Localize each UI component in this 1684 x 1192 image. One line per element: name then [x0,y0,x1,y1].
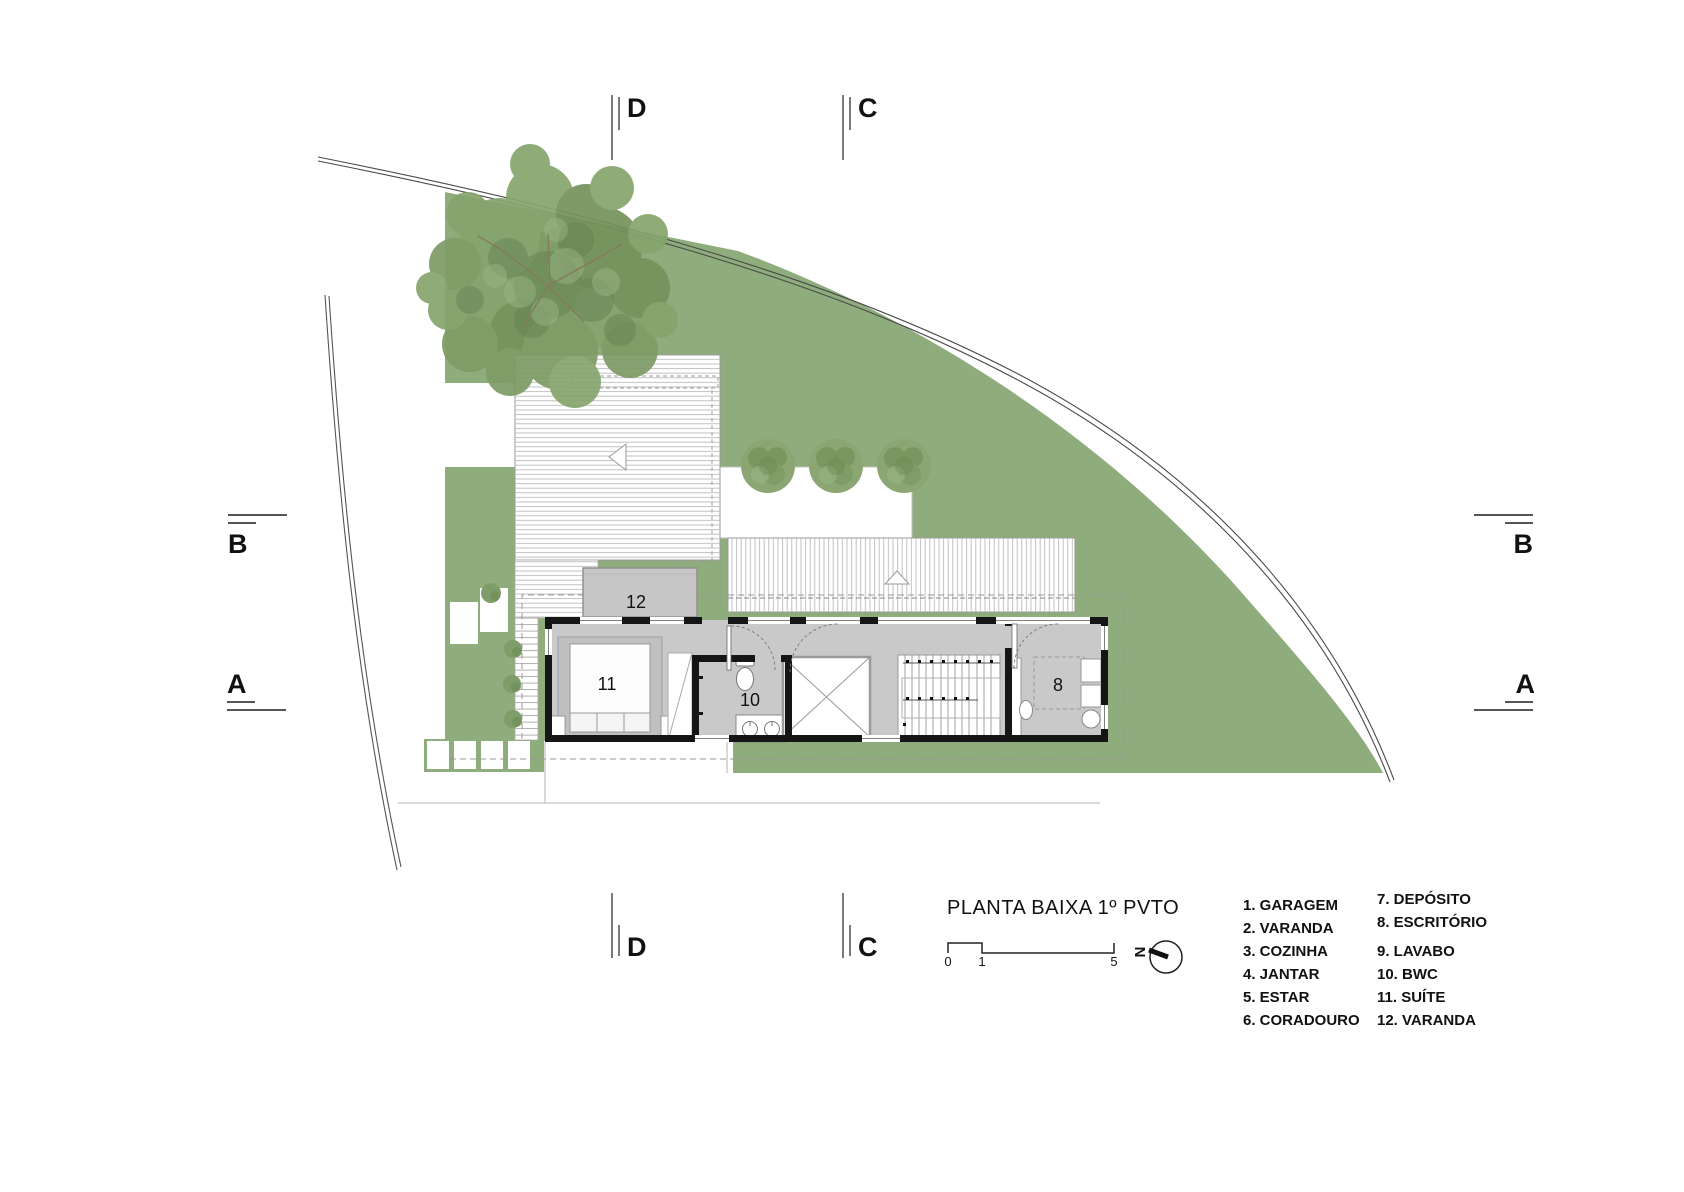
scale-tick-5: 5 [1110,954,1117,969]
void-x [783,657,870,737]
room-label-8: 8 [1053,675,1063,695]
small-trees [741,439,931,493]
small-tree [877,439,931,493]
section-letter-bottom-d: D [627,932,647,962]
legend-item: 9. LAVABO [1377,940,1487,963]
legend-item: 1. GARAGEM [1243,894,1360,917]
page-title: PLANTA BAIXA 1º PVTO [947,897,1179,920]
room-label-10: 10 [740,690,760,710]
section-letter-top-c: C [858,93,878,123]
small-tree [741,439,795,493]
section-letter-right-a: A [1516,669,1536,699]
shelf [1081,659,1101,682]
legend-item: 11. SUÍTE [1377,986,1487,1009]
legend-item: 6. CORADOURO [1243,1009,1360,1032]
scale-bar: 0 1 5 [944,943,1117,969]
legend-item: 12. VARANDA [1377,1009,1487,1032]
kitchen-roof [728,538,1075,612]
room-label-12: 12 [626,592,646,612]
legend-column-2: 7. DEPÓSITO 8. ESCRITÓRIO 9. LAVABO 10. … [1377,888,1487,1032]
section-letter-right-b: B [1514,529,1534,559]
stairs [898,655,1000,742]
road-edge [325,295,401,870]
legend-item: 10. BWC [1377,963,1487,986]
shelf [1081,685,1101,707]
scale-tick-0: 0 [944,954,951,969]
legend-item: 5. ESTAR [1243,986,1360,1009]
small-tree [809,439,863,493]
legend-item: 7. DEPÓSITO [1377,888,1487,911]
section-letter-left-a: A [227,669,247,699]
north-arrow: N [1131,941,1182,973]
floor-plan-sheet: 12 11 10 8 [0,0,1684,1192]
clearing [338,383,520,467]
plant-circle [1082,710,1100,728]
north-needle [1149,950,1168,957]
legend-item: 4. JANTAR [1243,963,1360,986]
legend-item: 2. VARANDA [1243,917,1360,940]
legend-column-1: 1. GARAGEM 2. VARANDA 3. COZINHA 4. JANT… [1243,894,1360,1032]
north-label: N [1131,947,1148,958]
legend-item: 3. COZINHA [1243,940,1360,963]
room-label-11: 11 [598,674,617,694]
chair [1020,701,1033,720]
section-letter-top-d: D [627,93,647,123]
scale-tick-1: 1 [978,954,985,969]
closet [668,653,692,741]
legend-item: 8. ESCRITÓRIO [1377,911,1487,934]
section-letter-left-b: B [228,529,248,559]
section-letter-bottom-c: C [858,932,878,962]
